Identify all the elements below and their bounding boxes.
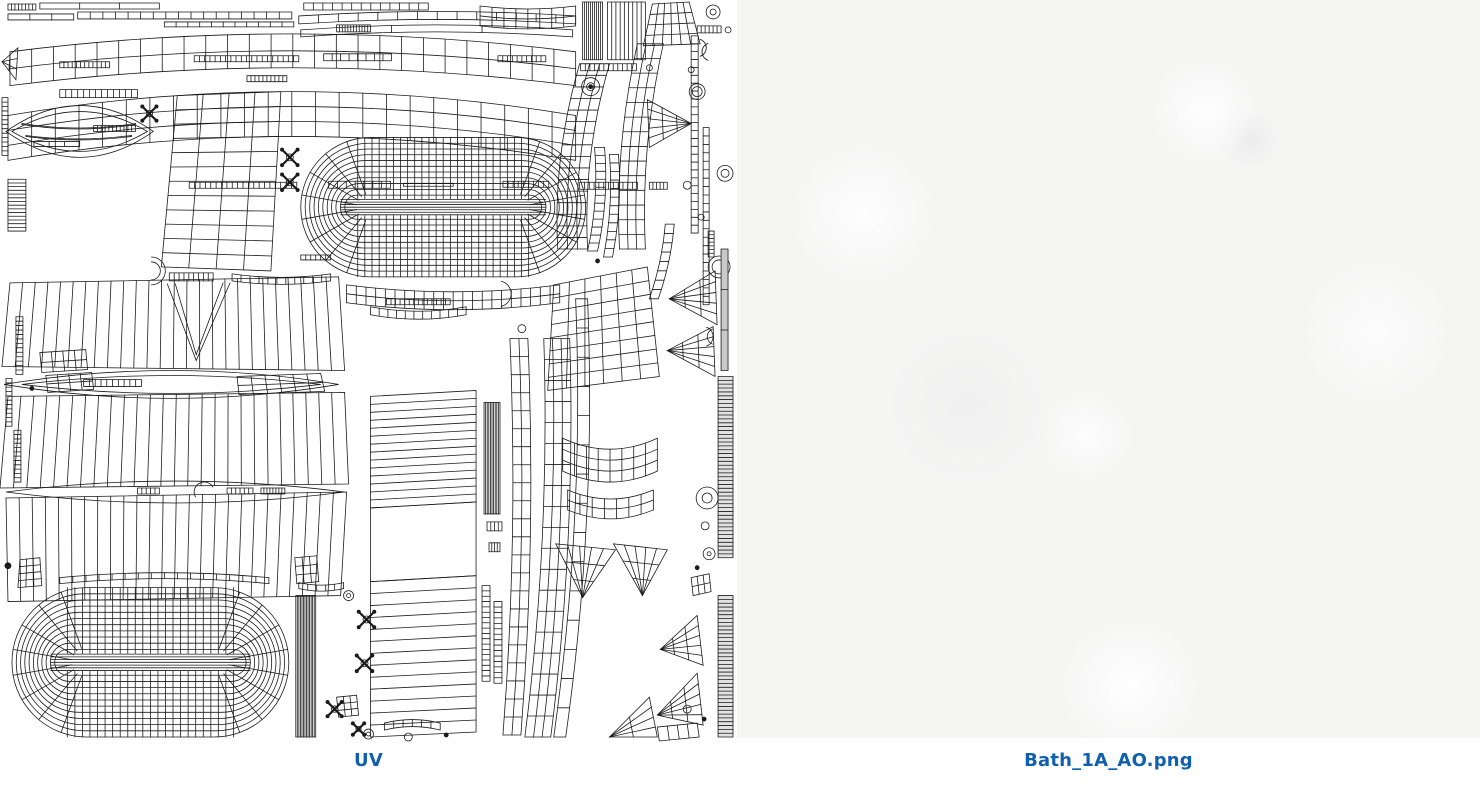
uv-panel: UV [0, 0, 737, 800]
uv-map-image [0, 0, 737, 738]
uv-caption: UV [354, 750, 383, 771]
uv-wireframe-svg [0, 0, 737, 742]
ao-panel: Bath_1A_AO.png [737, 0, 1480, 800]
ao-map-image [737, 0, 1480, 738]
texture-comparison-sheet: UV Bath_1A_AO.png [0, 0, 1480, 800]
ao-caption: Bath_1A_AO.png [1024, 750, 1193, 771]
